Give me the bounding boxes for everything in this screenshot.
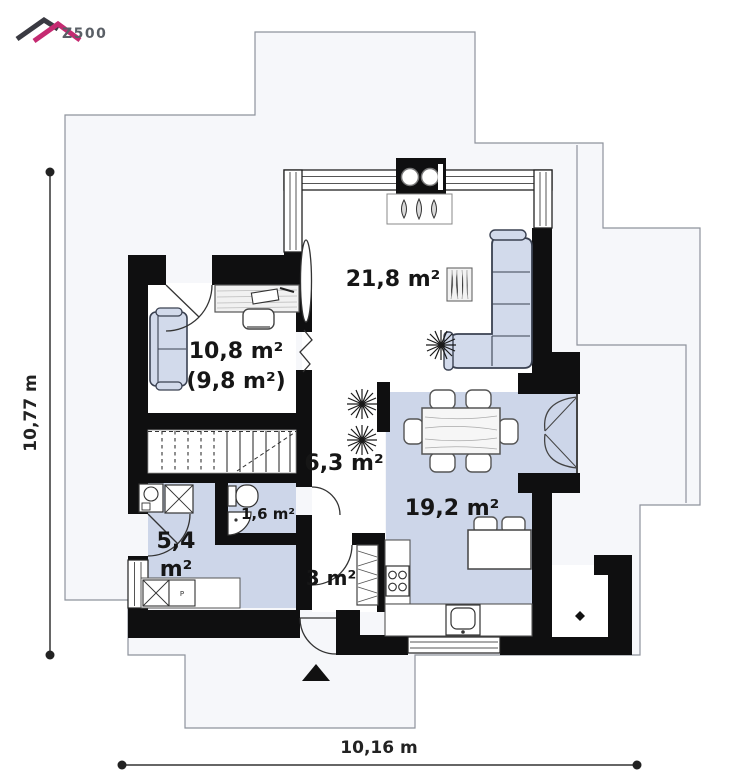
window-left-corner — [284, 170, 302, 252]
office-sofa — [150, 308, 187, 390]
chimney — [396, 158, 446, 196]
label-utility-unit: m² — [160, 557, 193, 582]
kitchen-sink — [446, 605, 480, 635]
window-kitchen-bottom — [408, 637, 500, 653]
stairs — [148, 430, 296, 473]
label-hall: 6,3 m² — [304, 451, 383, 476]
window-right-corner — [534, 170, 552, 228]
dimension-left: 10,77 m — [21, 168, 55, 660]
coffee-table — [447, 268, 472, 301]
plant-icon — [426, 330, 456, 360]
label-wc: 1,6 m² — [241, 505, 295, 523]
floor-plan-canvas: P — [0, 0, 735, 780]
kitchen-counter-left — [385, 540, 410, 604]
sofa-armrest — [490, 230, 526, 240]
office-living-door-leaf — [301, 240, 312, 322]
label-living: 21,8 m² — [346, 267, 441, 292]
office-desk — [215, 285, 299, 312]
stove — [386, 566, 409, 596]
plant-icon — [347, 389, 377, 419]
toilet — [228, 485, 258, 507]
washing-machine — [165, 485, 193, 513]
flame-icon — [432, 200, 437, 218]
label-dining: 19,2 m² — [405, 496, 500, 521]
dimension-left-label: 10,77 m — [21, 374, 41, 451]
flame-icon — [402, 200, 407, 218]
utility-bottom-counter: P — [141, 578, 240, 608]
logo-text: Z500 — [62, 26, 107, 42]
label-office-alt: (9,8 m²) — [186, 369, 285, 394]
dryer: P — [169, 580, 195, 606]
dimension-bottom: 10,16 m — [118, 738, 642, 770]
label-entry: 3 m² — [306, 566, 356, 590]
fireplace — [387, 194, 452, 224]
dryer-label: P — [180, 590, 184, 598]
washer-2 — [143, 580, 169, 606]
office-chair — [243, 309, 274, 329]
floor-plan-page: P — [0, 0, 735, 780]
utility-sink — [139, 484, 163, 512]
flame-icon — [417, 199, 422, 219]
fridge — [357, 545, 378, 605]
logo: Z500 — [17, 20, 107, 42]
dimension-bottom-label: 10,16 m — [340, 738, 417, 758]
niche-floor — [552, 565, 608, 637]
label-office: 10,8 m² — [189, 339, 284, 364]
label-utility-value: 5,4 — [157, 529, 196, 554]
kitchen-counter-bottom — [385, 604, 532, 636]
